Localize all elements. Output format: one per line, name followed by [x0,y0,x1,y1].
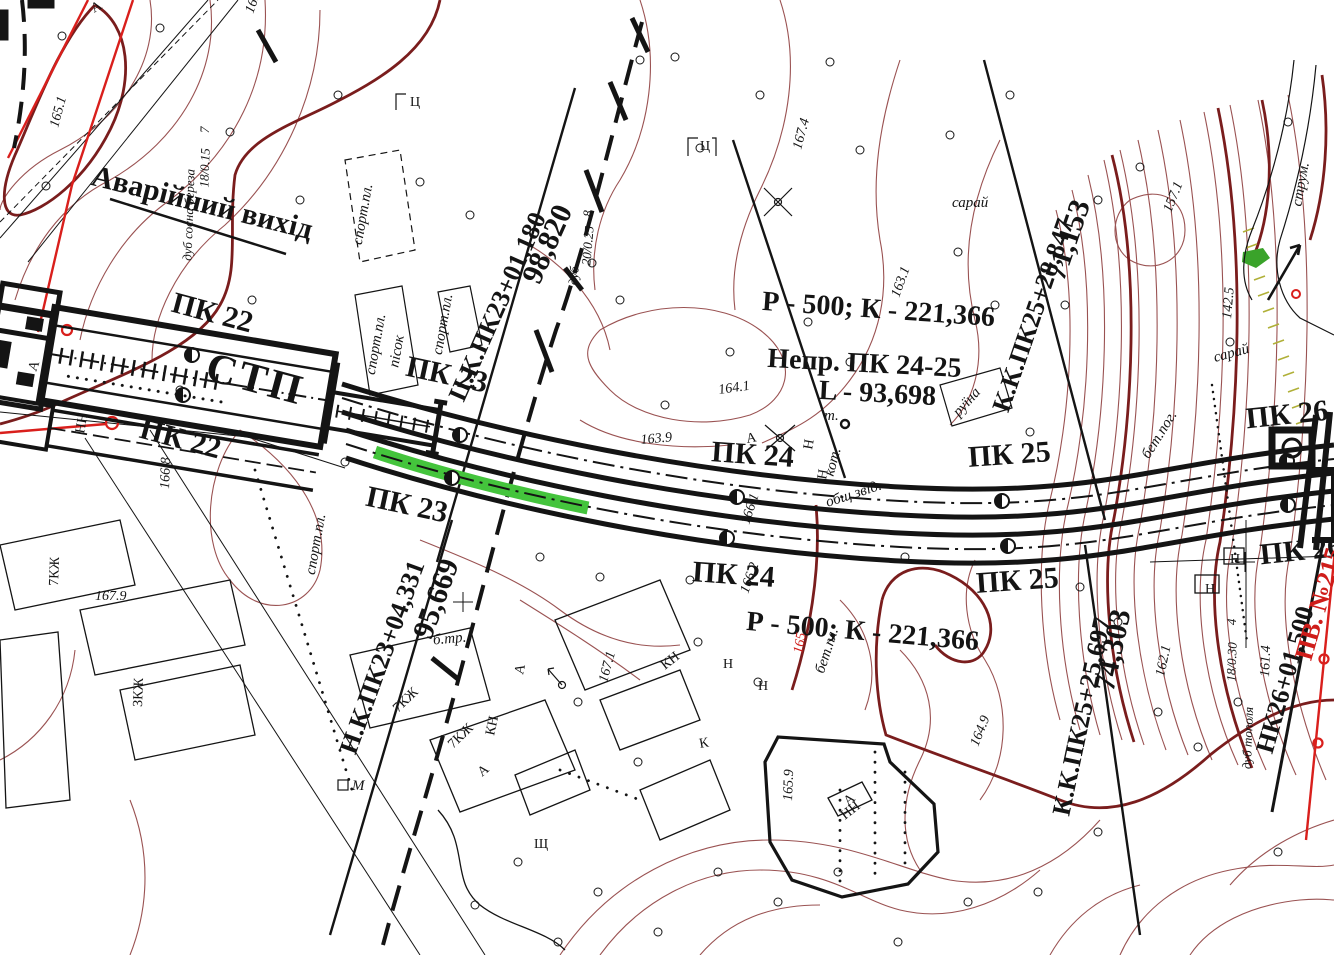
section-line-kk-lower [1085,545,1140,935]
tree-count: 7 [197,126,212,134]
elevation: 167.9 [95,589,127,604]
building-letter: 7КЖ [390,685,422,716]
elevation: 166.8 [158,457,174,489]
contour-lines-bold [0,0,1334,808]
curve-note-upper: Р - 500; К - 221,366 [761,286,996,333]
sport-ground-label: спорт.пл. [430,293,456,356]
building-letter: К [698,735,710,752]
tree-size: 18/0.30 [1223,641,1239,681]
tree-species: дуб сосна береза [179,168,197,261]
elevation: 163.1 [889,265,914,300]
elevation: 164.9 [968,714,994,749]
transition-note-line2: L - 93,698 [818,375,937,412]
map-canvas: Аварійний вихід СТП ПК 22 ПК 22 ПК 23 ПК… [0,0,1334,955]
building-letter: 7КЖ [47,556,63,586]
building-letter: ЗКЖ [131,677,147,707]
parcel-letter: А [89,0,106,16]
elevation: 162.1 [1153,644,1174,678]
building-letter: Н [801,438,818,451]
point-label: т. [824,408,839,424]
elevation: 167.4 [790,117,813,151]
building-letter: КН [483,715,502,737]
picket-label-pk22-lower: ПК 22 [136,412,224,465]
tree-species: дуб [565,265,582,285]
station-label: СТП [201,344,310,414]
curve-note-lower: Р - 500; К - 221,366 [745,606,980,657]
shed-label: сарай [952,195,989,211]
m-symbol-square [338,780,348,790]
elevation: 142.5 [1220,287,1238,320]
chainage-nk: Н.К.ПК23+04,331 [334,557,431,758]
building-letter: Щ [534,837,548,852]
elevation: 164.1 [717,379,750,398]
building-letter: Н [758,679,768,694]
building-letter: Н [1205,582,1215,597]
topographic-plan: Аварійний вихід СТП ПК 22 ПК 22 ПК 23 ПК… [0,0,1334,955]
sport-ground-label: спорт.пл. [350,183,376,246]
sheet-letter-brackets [396,94,716,156]
vegetation-patch [1242,248,1270,268]
survey-point [841,420,849,428]
sheet-letter: Ц [700,139,710,154]
elevation: 163.9 [640,430,673,448]
tree-size: 18/0.15 [196,147,212,187]
shed-label: сарай [1212,341,1252,366]
edge-mark [0,10,8,40]
parcel-letter: А [512,662,529,676]
ruin-label: руїна [949,385,984,421]
picket-label-pk25-lower: ПК 25 [975,561,1060,600]
elevation: 165.9 [781,769,797,801]
sheet-letter: Ц [410,95,420,110]
m-label: М [351,778,366,794]
building-letter: Н [723,657,733,672]
sport-ground-label: спорт.пл. [303,513,329,576]
building-letter: НН [73,412,91,435]
stream-flow-arrow [1268,245,1300,300]
elevation: 161.9 [243,0,268,15]
tree-count: 8 [580,209,596,217]
stream-label: струм. [1289,161,1312,208]
tree-count: 4 [1224,618,1239,626]
elevation: 165.1 [47,95,70,129]
edge-mark [28,0,54,8]
building-letter: Н [1230,552,1240,567]
elevation: 161.4 [1258,645,1274,677]
concrete-label: бет.пог. [1139,408,1181,462]
elevation-red: 165 [791,631,809,654]
picket-label-pk25-upper: ПК 25 [967,435,1052,474]
tree-species: дуб тополя [1239,706,1256,769]
picket-label-pk24-lower: ПК 24 [691,555,776,594]
building-letter: КН [658,649,683,673]
boundary-dashed-line [14,0,642,945]
parcel-letter: А [475,762,493,781]
b-tr-label: б.тр. [432,630,467,649]
sand-label: пісок [386,333,408,369]
elevation: 157.1 [1161,180,1187,215]
